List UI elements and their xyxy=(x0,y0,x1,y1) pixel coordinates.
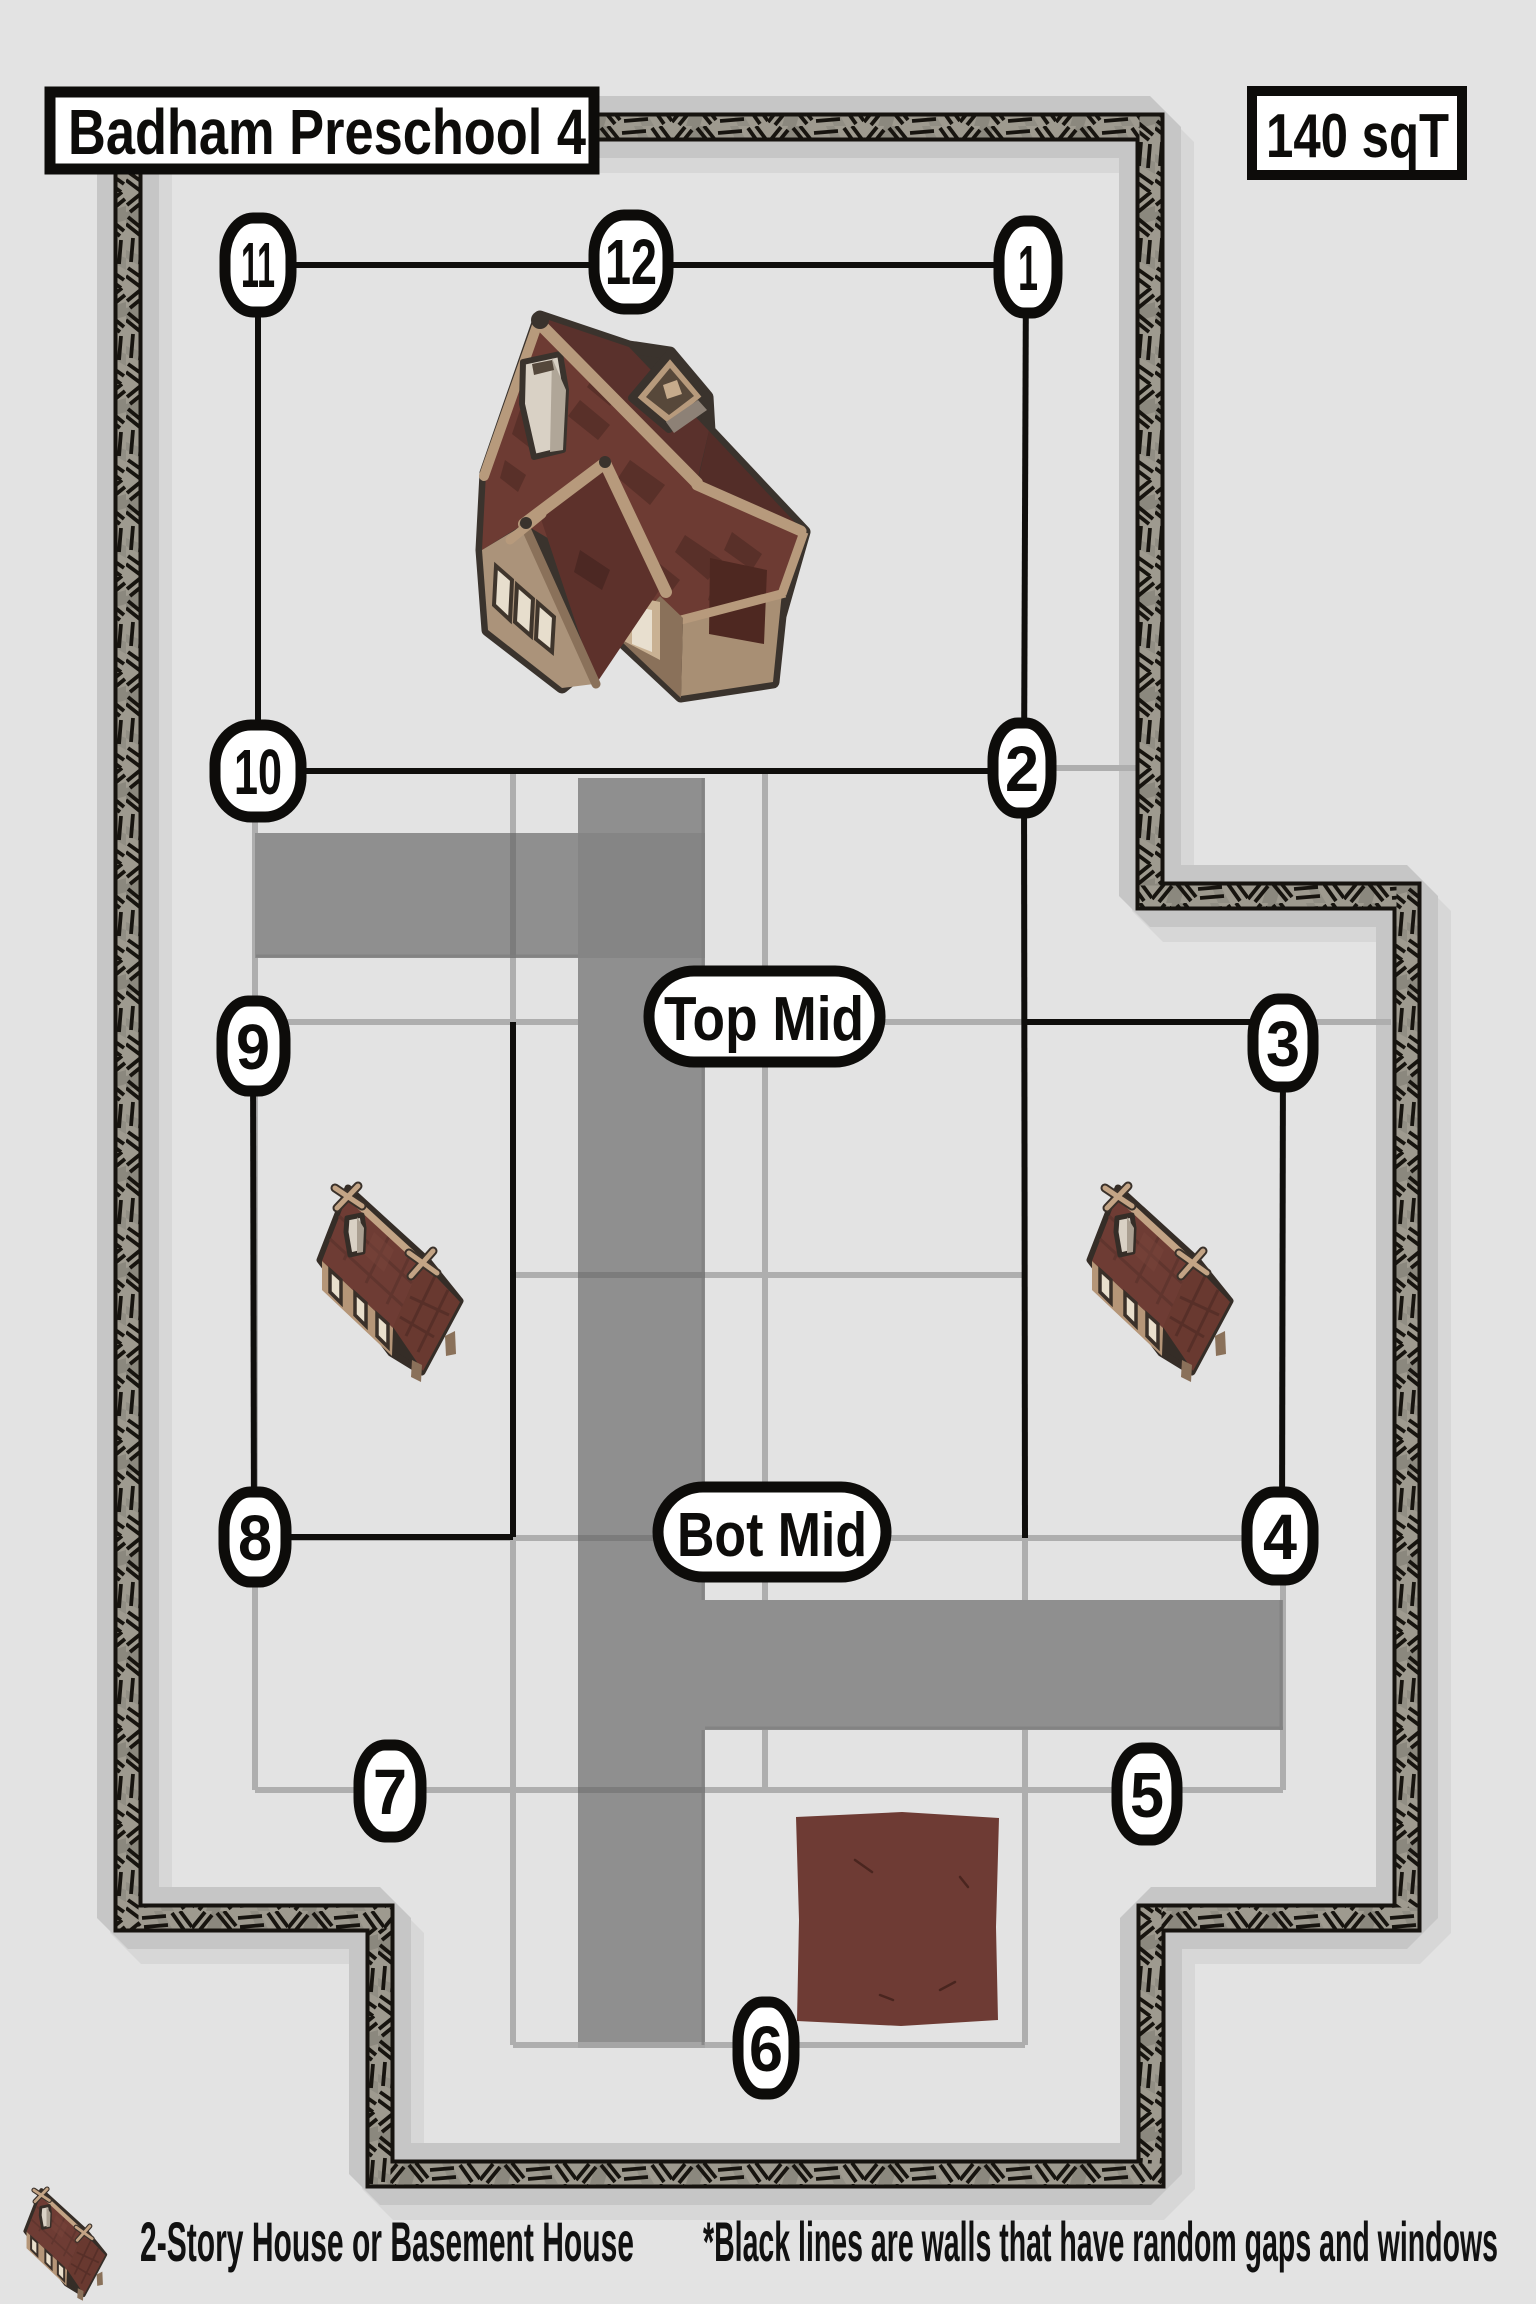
svg-text:9: 9 xyxy=(236,1011,270,1083)
svg-text:3: 3 xyxy=(1266,1008,1300,1080)
svg-text:10: 10 xyxy=(234,736,282,808)
svg-text:6: 6 xyxy=(749,2013,783,2085)
svg-text:11: 11 xyxy=(241,229,275,301)
svg-text:4: 4 xyxy=(1263,1501,1297,1573)
svg-text:2: 2 xyxy=(1005,733,1039,805)
svg-text:140 sqT: 140 sqT xyxy=(1266,102,1449,171)
svg-text:2-Story House or Basement Hous: 2-Story House or Basement House xyxy=(140,2210,634,2273)
svg-text:*Black lines are walls that ha: *Black lines are walls that have random … xyxy=(703,2210,1498,2273)
svg-text:8: 8 xyxy=(238,1502,272,1574)
svg-text:Badham Preschool 4: Badham Preschool 4 xyxy=(68,96,586,168)
svg-text:1: 1 xyxy=(1018,232,1038,304)
svg-text:5: 5 xyxy=(1130,1759,1164,1831)
svg-text:Top Mid: Top Mid xyxy=(664,985,864,1054)
svg-text:7: 7 xyxy=(373,1756,407,1828)
svg-text:12: 12 xyxy=(605,226,657,298)
svg-text:Bot Mid: Bot Mid xyxy=(677,1501,867,1570)
